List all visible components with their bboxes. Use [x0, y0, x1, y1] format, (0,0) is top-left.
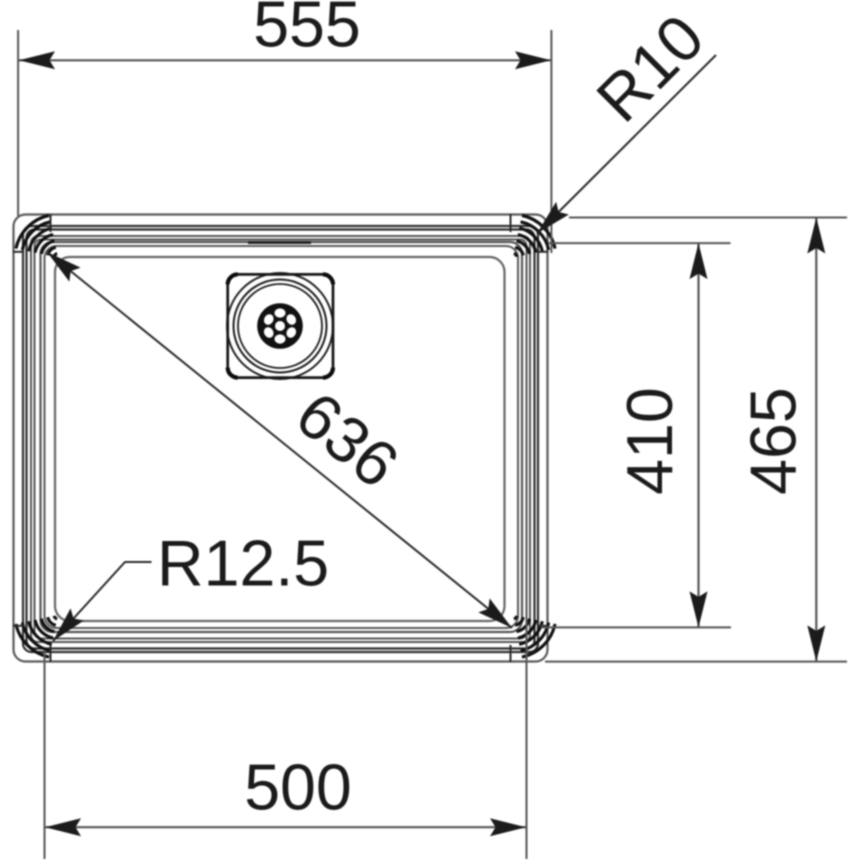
svg-text:410: 410	[614, 387, 686, 495]
svg-text:555: 555	[253, 0, 361, 61]
svg-text:R12.5: R12.5	[157, 528, 329, 600]
svg-text:636: 636	[283, 378, 412, 502]
svg-text:465: 465	[738, 387, 810, 495]
svg-text:500: 500	[244, 752, 352, 824]
svg-text:R10: R10	[583, 1, 718, 136]
